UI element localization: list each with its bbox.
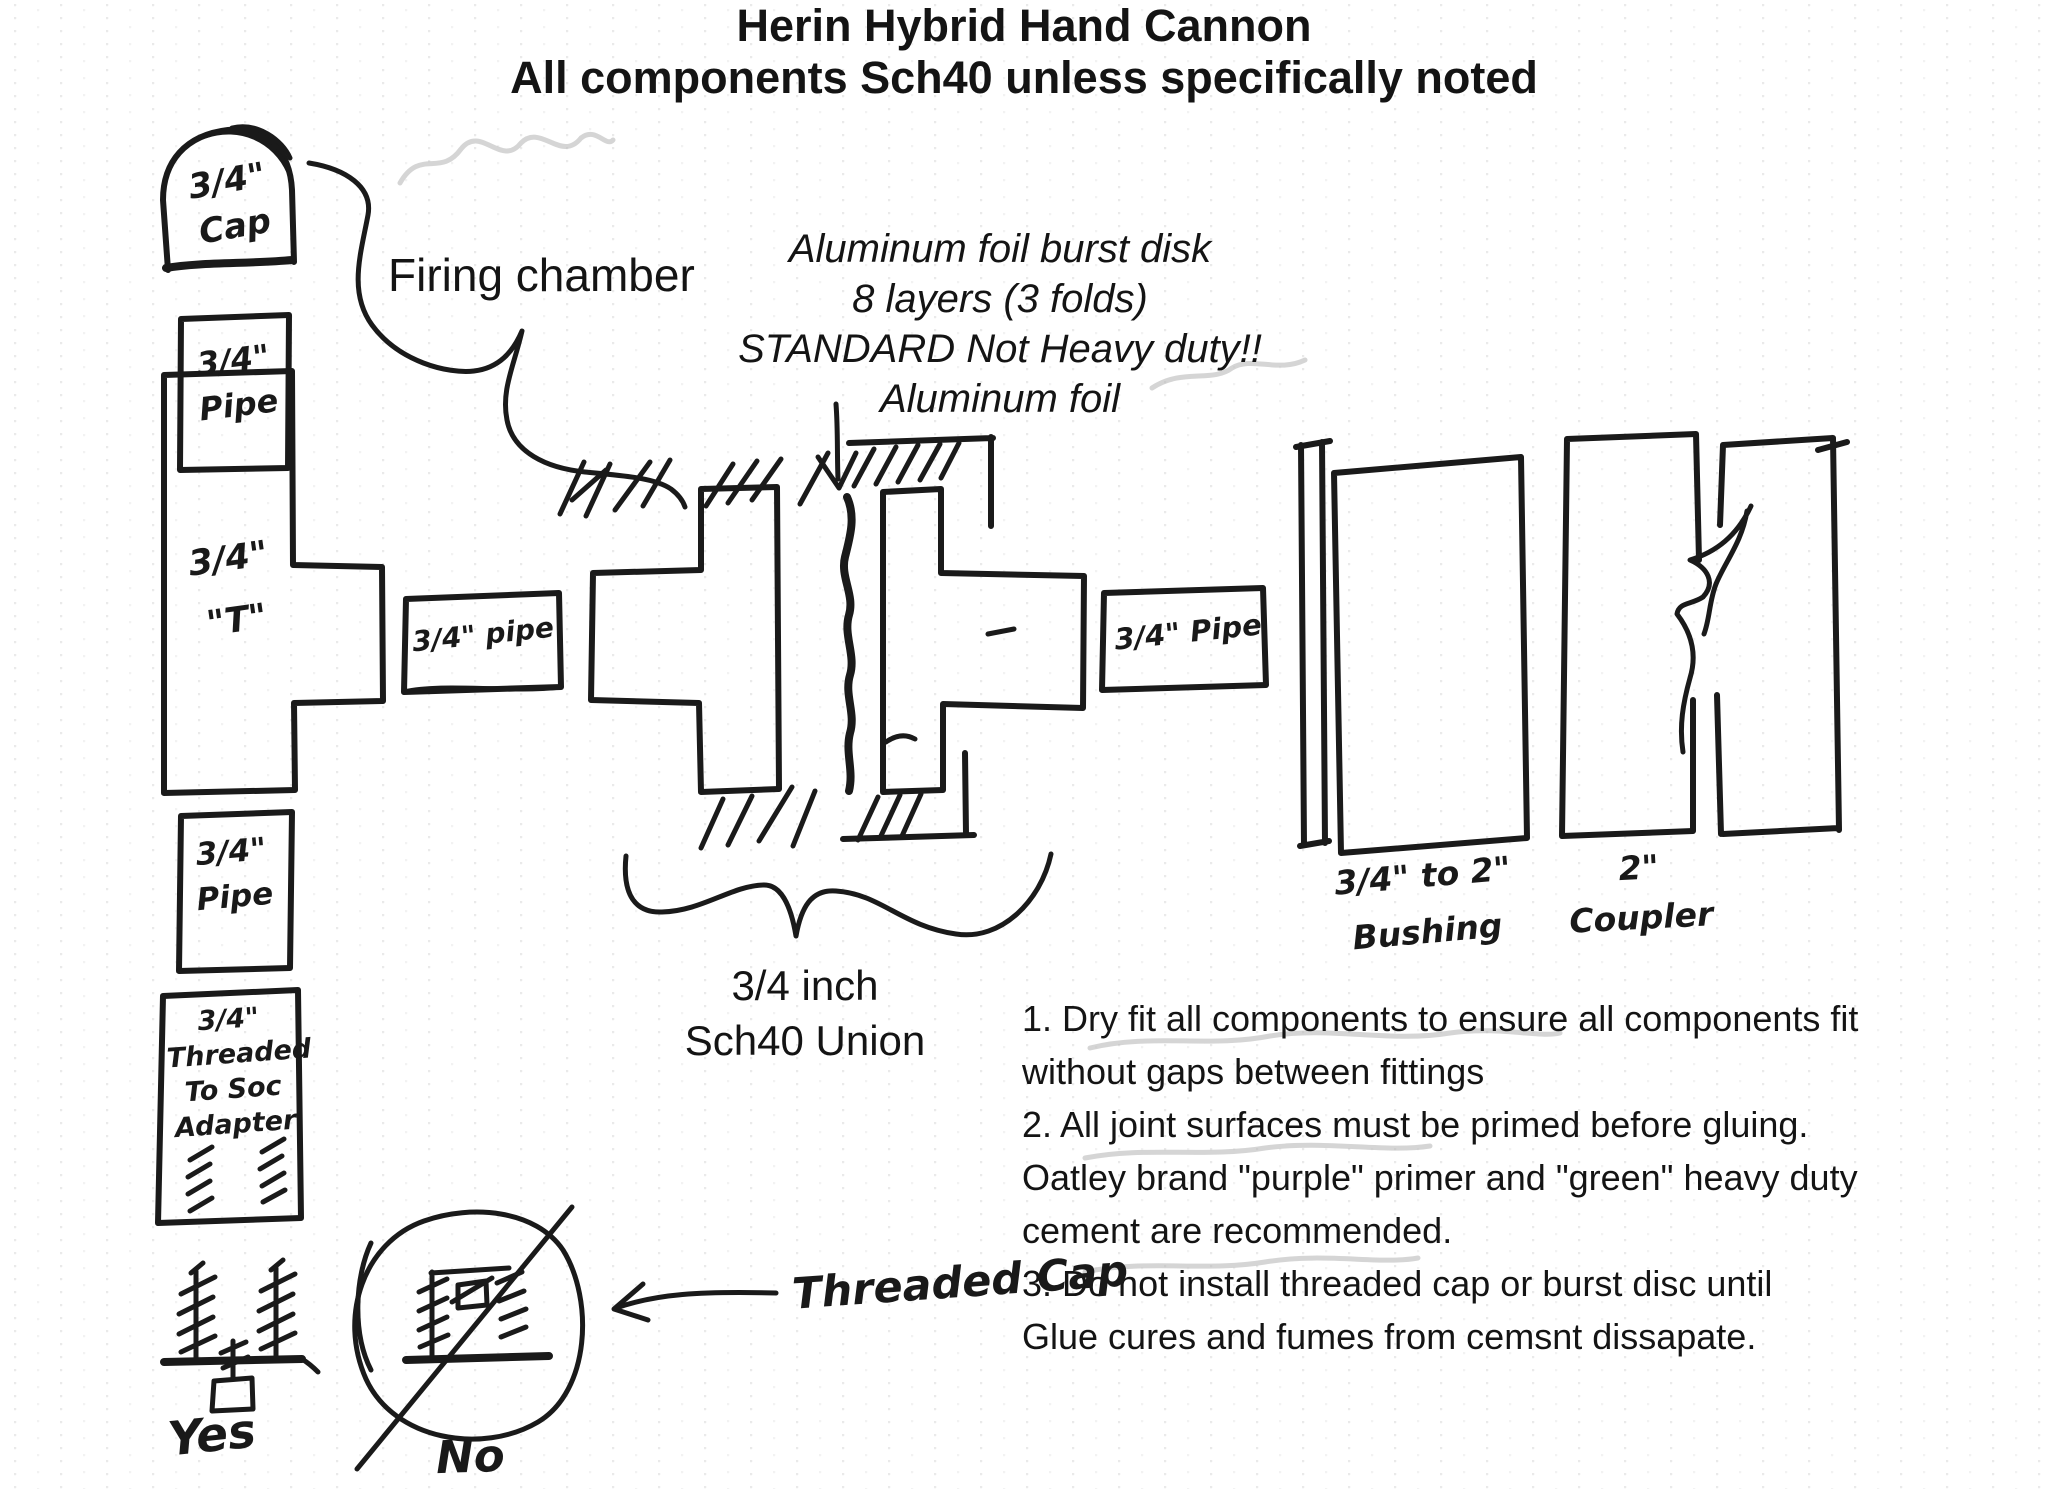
no-inner-square — [452, 1278, 492, 1308]
union-curly-brace — [625, 854, 1051, 936]
burst-disk-note: Aluminum foil burst disk 8 layers (3 fol… — [650, 224, 1350, 424]
coupler-drawing — [1562, 434, 1847, 836]
threaded-cap-arrow-shaft — [616, 1292, 776, 1308]
yes-label: Yes — [165, 1404, 258, 1468]
burst-disk-note-line: STANDARD Not Heavy duty!! — [650, 324, 1350, 374]
coupler-left-body — [1562, 434, 1699, 836]
pipe-lower-label-line: Pipe — [178, 870, 292, 924]
title-line-2: All components Sch40 unless specifically… — [0, 52, 2048, 104]
union-right-body-outline — [883, 489, 1084, 792]
no-circle-overstroke — [358, 1243, 371, 1370]
union-label-line: Sch40 Union — [615, 1013, 995, 1068]
union-brace — [625, 854, 1051, 936]
union-label: 3/4 inch Sch40 Union — [615, 958, 995, 1068]
adapter-label: 3/4" Threaded To Soc Adapter — [163, 998, 300, 1147]
union-right-inner-tick — [886, 629, 1014, 742]
union-left-outline — [591, 487, 779, 792]
union-right-half-drawing — [843, 437, 1084, 840]
burst-disk-note-line: Aluminum foil burst disk — [650, 224, 1350, 274]
bushing-drawing — [1296, 441, 1527, 853]
no-circle — [355, 1212, 583, 1439]
yes-correct-sketch — [164, 1260, 318, 1411]
yes-baseline-tail — [302, 1359, 318, 1372]
coupler-break-squiggle — [1677, 506, 1751, 752]
scanned-diagram-page: Herin Hybrid Hand Cannon All components … — [0, 0, 2048, 1489]
cap-bottom-edge — [166, 260, 292, 268]
coupler-label-line: 2" — [1552, 839, 1724, 898]
instruction-line: 1. Dry fit all components to ensure all … — [1022, 992, 2032, 1045]
union-left-bottom-thread-hatching — [701, 787, 815, 848]
instruction-line: cement are recommended. — [1022, 1204, 2032, 1257]
instruction-line: Glue cures and fumes from cemsnt dissapa… — [1022, 1310, 2032, 1363]
instruction-line: 2. All joint surfaces must be primed bef… — [1022, 1098, 2032, 1151]
bushing-body-outline — [1334, 457, 1527, 853]
union-right-top-thread-hatching — [854, 443, 959, 486]
pipe-top-label: 3/4" Pipe — [177, 332, 295, 434]
bushing-inner-strip — [1296, 441, 1330, 846]
burst-disk-note-line: Aluminum foil — [650, 374, 1350, 424]
firing-chamber-pointer — [309, 163, 685, 507]
instruction-line: 3. Do not install threaded cap or burst … — [1022, 1257, 2032, 1310]
instruction-line: Oatley brand "purple" primer and "green"… — [1022, 1151, 2032, 1204]
no-baseline — [406, 1356, 549, 1360]
union-label-line: 3/4 inch — [615, 958, 995, 1013]
coupler-label: 2" Coupler — [1552, 839, 1727, 948]
bushing-label: 3/4" to 2" Bushing — [1325, 840, 1524, 968]
adapter-thread-hatching — [188, 1139, 285, 1211]
assembly-instructions: 1. Dry fit all components to ensure all … — [1022, 992, 2032, 1363]
burst-disk-wavy-line — [844, 497, 852, 791]
union-left-top-thread-hatching — [560, 453, 828, 516]
union-left-half-drawing — [560, 453, 828, 848]
coupler-label-line: Coupler — [1555, 889, 1727, 948]
pipe-lower-label: 3/4" Pipe — [174, 825, 291, 924]
title-line-1: Herin Hybrid Hand Cannon — [0, 0, 2048, 52]
instruction-line: without gaps between fittings — [1022, 1045, 2032, 1098]
no-label: No — [435, 1429, 505, 1484]
threaded-cap-pointer — [614, 1284, 776, 1320]
burst-disk-drawing — [818, 404, 856, 791]
firing-chamber-label: Firing chamber — [388, 248, 695, 302]
coupler-right-body — [1717, 438, 1847, 834]
burst-disk-note-line: 8 layers (3 folds) — [650, 274, 1350, 324]
pointer-curve — [309, 163, 685, 507]
union-right-bottom-thread-hatching — [858, 794, 921, 840]
page-title: Herin Hybrid Hand Cannon All components … — [0, 0, 2048, 104]
tee-label: 3/4" "T" — [167, 521, 298, 660]
